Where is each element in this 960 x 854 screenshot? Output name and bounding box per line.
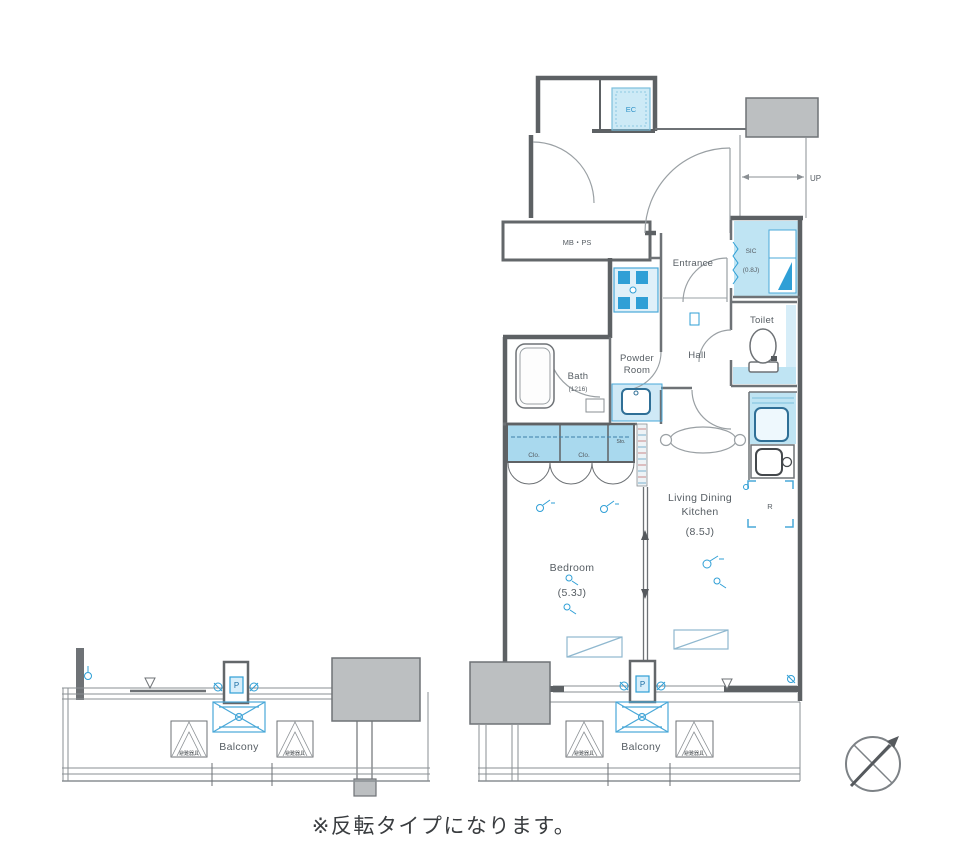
hall: Hall <box>688 313 706 361</box>
sic-label: SIC <box>746 248 757 255</box>
bedroom: Bedroom (5.3J) <box>550 562 728 657</box>
toilet: Toilet <box>749 315 778 372</box>
ldk-size-label: (8.5J) <box>686 526 715 538</box>
bath-label: Bath <box>568 371 589 382</box>
drain-marker <box>145 678 155 688</box>
entrance: Entrance <box>663 258 727 298</box>
evacuation-hatch <box>213 702 265 732</box>
neighbor-windows <box>62 688 332 699</box>
stair-landing: UP <box>740 98 821 218</box>
bedroom-label: Bedroom <box>550 562 595 574</box>
wall-symbol <box>564 604 576 614</box>
floorplan-page: EC UP MB・PS <box>0 0 960 854</box>
meter-box <box>746 98 818 137</box>
ec-label: EC <box>626 105 637 114</box>
entrance-label: Entrance <box>673 258 713 269</box>
outlet-symbol <box>787 675 795 683</box>
caption-note: ※反転タイプになります。 <box>312 815 577 838</box>
light-symbol <box>703 556 724 568</box>
pillar-right: P <box>620 661 665 702</box>
mbps-label: MB・PS <box>563 238 592 247</box>
kitchen: R <box>748 398 794 527</box>
balcony-right-label: Balcony <box>621 741 661 753</box>
duct <box>357 721 372 780</box>
sic-size-label: (0.8J) <box>743 267 760 274</box>
shaft-box-right <box>470 662 550 724</box>
ldk-label-2: Kitchen <box>681 506 718 518</box>
hatch-note: 避難器具 <box>684 750 704 757</box>
vanity-sink <box>622 389 650 414</box>
floorplan-drawing: EC UP MB・PS <box>0 0 960 854</box>
mbps-shaft: MB・PS <box>503 222 650 260</box>
hatch-note: 避難器具 <box>179 750 199 757</box>
closet-label-2: Clo. <box>578 452 590 459</box>
outlet-symbol <box>85 666 92 680</box>
compass <box>846 736 900 791</box>
north-arrow <box>851 745 890 786</box>
balcony-left-label: Balcony <box>219 741 259 753</box>
hall-panel <box>690 313 699 325</box>
chair <box>661 435 672 446</box>
shaft-box-left <box>332 658 420 721</box>
ldk: Living Dining Kitchen (8.5J) <box>661 427 746 538</box>
closet-label-1: Clo. <box>528 452 540 459</box>
up-label: UP <box>810 174 821 183</box>
storage-label: Sto. <box>617 439 626 445</box>
toilet-label: Toilet <box>750 315 774 326</box>
wall-stub <box>76 648 84 700</box>
fridge-label: R <box>767 502 773 511</box>
dining-table <box>670 427 736 453</box>
wall-symbol <box>714 578 726 588</box>
neighbor-structure: P 避難器具 <box>62 648 430 796</box>
washer-drain <box>630 287 636 293</box>
kitchen-sink <box>755 408 788 441</box>
hall-ldk-door <box>692 390 731 429</box>
powder-label-1: Powder <box>620 353 654 364</box>
pillar-label: P <box>640 680 645 689</box>
closet-doors <box>508 463 634 484</box>
hall-label: Hall <box>688 350 706 361</box>
hatch-strip <box>637 424 647 486</box>
bathtub <box>516 344 554 408</box>
light-symbol <box>601 501 620 513</box>
bedroom-size-label: (5.3J) <box>558 587 587 599</box>
toilet-flush-handle <box>771 356 777 361</box>
ldk-label-1: Living Dining <box>668 492 732 504</box>
light-symbol <box>537 500 556 512</box>
bath-counter <box>586 399 604 412</box>
evacuation-hatch <box>616 702 668 732</box>
pillar-label: P <box>234 681 239 690</box>
chair <box>735 435 746 446</box>
hatch-note: 避難器具 <box>285 750 305 757</box>
bath-size-label: (1216) <box>569 386 588 393</box>
pillar-left: P <box>214 662 258 703</box>
wall-symbol <box>566 575 578 585</box>
hatch-note: 避難器具 <box>574 750 594 757</box>
powder-label-2: Room <box>624 365 651 376</box>
